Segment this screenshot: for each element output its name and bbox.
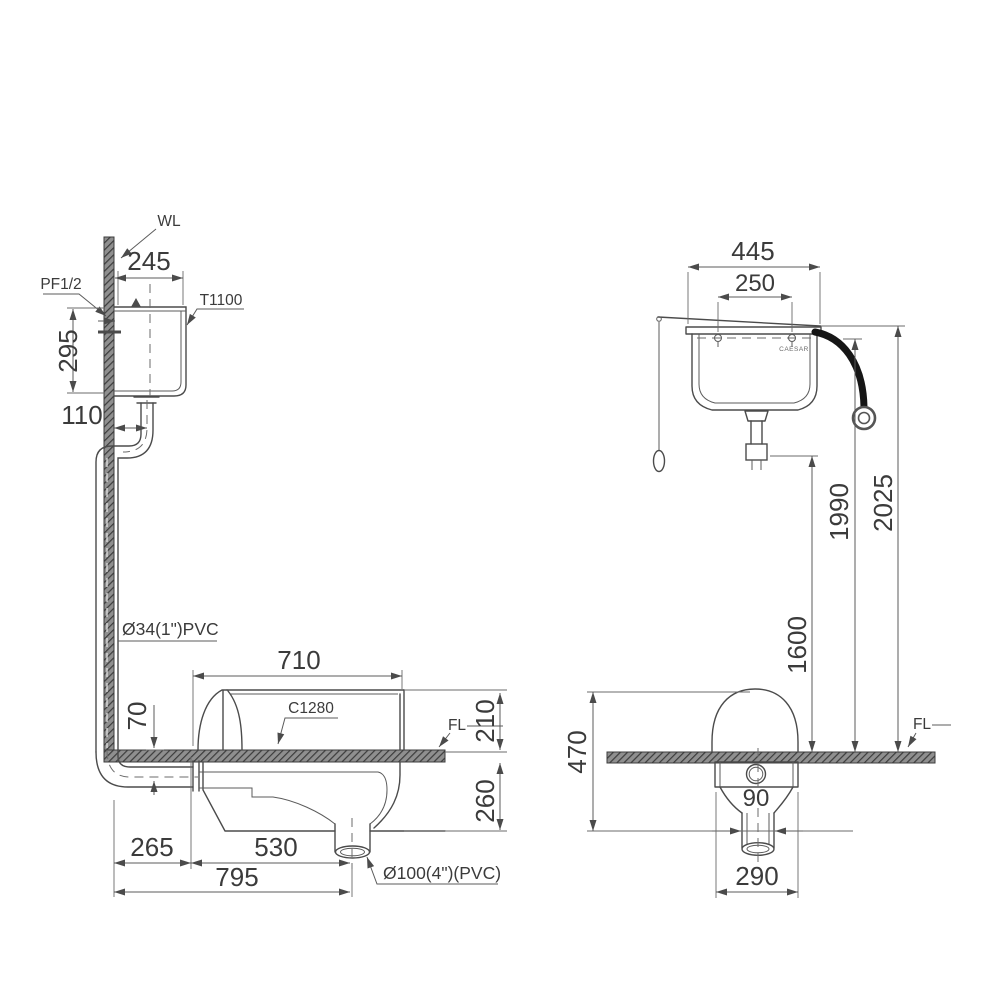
side-view: WL PF1/2 T1100 C1280 FL Ø34(1")PVC <box>40 213 507 897</box>
dim-inlet-height-text: 1990 <box>824 483 854 541</box>
pan-model-callout: C1280 <box>278 700 338 744</box>
dim-wall-to-outlet-text: 795 <box>215 862 258 892</box>
dim-tank-width-front-text: 445 <box>731 236 774 266</box>
chain-handle <box>654 451 665 472</box>
technical-drawing-page: WL PF1/2 T1100 C1280 FL Ø34(1")PVC <box>0 0 1000 1000</box>
pan-model-label: C1280 <box>288 700 334 717</box>
pan-front-view <box>712 689 798 866</box>
dim-260: 260 <box>404 763 507 831</box>
dim-tank-width-text: 245 <box>127 246 170 276</box>
dim-1600: 1600 <box>770 456 818 752</box>
tank-model-callout: T1100 <box>187 292 244 325</box>
dim-265: 265 <box>114 757 191 897</box>
front-view: CAESAR <box>562 236 951 898</box>
fl-label-side: FL <box>448 717 466 734</box>
brand-logo: CAESAR <box>779 346 809 353</box>
drain-pipe-callout: Ø100(4")(PVC) <box>367 857 501 884</box>
dim-outlet-dia-text: 90 <box>743 785 770 812</box>
wall-section <box>104 237 114 752</box>
dim-pan-to-outlet-text: 530 <box>254 832 297 862</box>
floor-slab-side <box>104 750 445 762</box>
tank-spud <box>745 411 768 470</box>
drain-pipe-label: Ø100(4")(PVC) <box>383 863 501 883</box>
flush-pipe-callout: Ø34(1")PVC <box>118 619 219 641</box>
dim-tank-top-height-text: 2025 <box>868 474 898 532</box>
wl-label: WL <box>157 213 181 230</box>
dim-bolt-spacing-text: 250 <box>735 270 775 297</box>
dim-795: 795 <box>114 862 350 892</box>
dim-pipe-offset-text: 110 <box>61 400 102 430</box>
toilet-installation-diagram: WL PF1/2 T1100 C1280 FL Ø34(1")PVC <box>0 0 1000 1000</box>
dim-tank-height-text: 295 <box>53 329 83 372</box>
dim-1990: 1990 <box>824 339 862 752</box>
dim-710: 710 <box>193 645 402 746</box>
fl-label-front: FL <box>913 716 931 733</box>
floor-line-callout-front: FL <box>908 716 951 747</box>
pf-label: PF1/2 <box>40 276 81 293</box>
tank-model-label: T1100 <box>200 292 243 309</box>
dim-wall-to-pan-text: 265 <box>130 832 173 862</box>
dim-295: 295 <box>53 308 104 393</box>
float-mark <box>131 298 141 307</box>
dim-70: 70 <box>122 702 164 795</box>
tank-front-view: CAESAR <box>654 317 822 472</box>
dim-spud-height-text: 1600 <box>782 616 812 674</box>
dim-pipe-depth-text: 70 <box>122 702 152 731</box>
dim-body-width-text: 290 <box>735 861 778 891</box>
dim-pan-length-text: 710 <box>277 645 320 675</box>
pan-inlet-coupling <box>193 761 199 791</box>
pipe-centerline <box>107 400 198 777</box>
inlet-hose <box>815 332 875 429</box>
tank-side-view <box>114 284 186 396</box>
dim-pan-total-depth-text: 470 <box>562 730 592 773</box>
dim-below-floor-text: 260 <box>470 779 500 822</box>
flush-pipe-label: Ø34(1")PVC <box>122 619 219 639</box>
dim-rim-height-text: 210 <box>470 699 500 742</box>
hose-flange-ring <box>853 407 875 429</box>
